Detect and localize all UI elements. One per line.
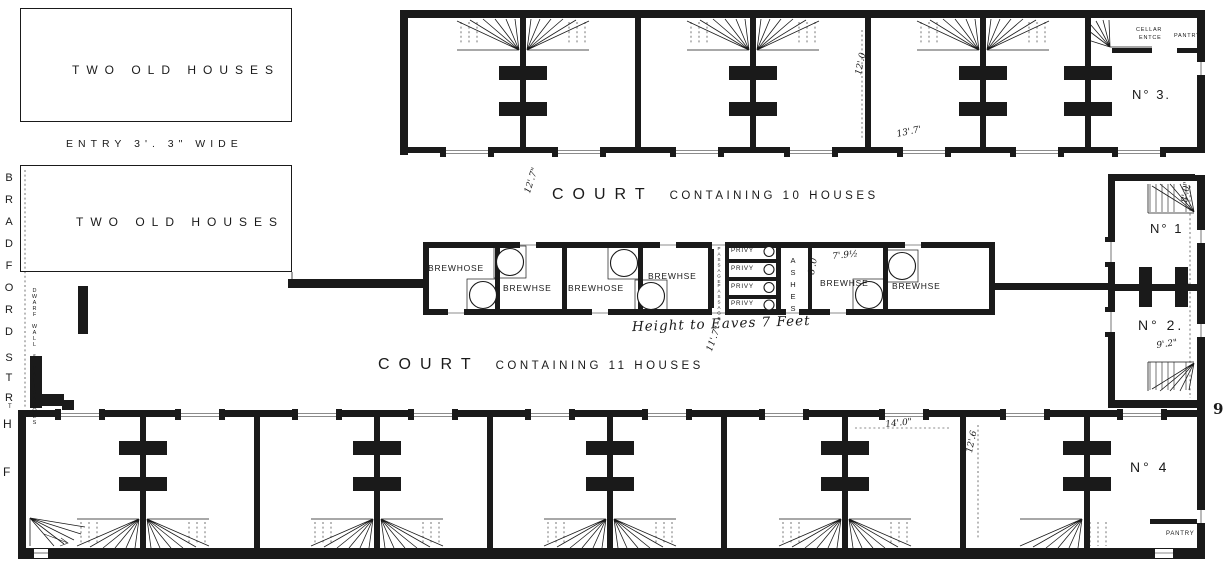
privy-label: PRIVY — [731, 266, 754, 272]
privy-label: PRIVY — [731, 301, 754, 307]
brewhouse-label: BREWHOSE — [428, 264, 484, 273]
brewhouse-label: BREWHSE — [503, 284, 552, 293]
court-boundary-walls — [30, 279, 1108, 412]
privy-label: PRIVY — [731, 284, 754, 290]
pantry-top-label: PANTRY — [1174, 34, 1201, 40]
cellar-entrance-label-line2: ENTCE — [1139, 36, 1162, 42]
brewhouse-label: BREWHOSE — [568, 284, 624, 293]
room-no3-label: N° 3. — [1132, 88, 1171, 101]
cellar-entrance-label-line1: CELLAR — [1136, 28, 1162, 34]
stair-fan — [457, 19, 1152, 50]
street-letter-f: F — [3, 466, 10, 478]
brewhouse-label: BREWHSE — [820, 279, 869, 288]
passage-label: PASSAGE — [716, 283, 721, 322]
brewhouse-label: BREWHSE — [892, 282, 941, 291]
street-letter-h: H — [3, 418, 12, 430]
lower-court-title: COURTCONTAINING 11 HOUSES — [378, 357, 704, 373]
street-name-t: T — [8, 404, 12, 410]
top-terrace — [400, 10, 1205, 157]
brewhouse-label: BREWHSE — [648, 272, 697, 281]
upper-court-title: COURTCONTAINING 10 HOUSES — [552, 187, 879, 203]
room-no2-label: N° 2. — [1138, 318, 1184, 332]
upper-court-rest: CONTAINING 10 HOUSES — [670, 190, 879, 202]
stair-fan — [30, 518, 1106, 548]
lower-court-rest: CONTAINING 11 HOUSES — [496, 360, 704, 372]
street-name-str: STR — [3, 352, 14, 412]
entry-label: ENTRY 3'. 3" WIDE — [66, 139, 243, 150]
privy-label: PRIVY — [731, 248, 754, 254]
upper-court-word: COURT — [552, 186, 654, 203]
passage-label: PASSAGE — [716, 246, 721, 285]
plate-mark: 9 — [1213, 402, 1223, 417]
ashes-label: ASHES — [789, 256, 797, 316]
two-old-houses-lower-label: TWO OLD HOUSES — [76, 216, 284, 228]
two-old-houses-upper-label: TWO OLD HOUSES — [72, 64, 280, 76]
fireplace — [499, 66, 1112, 116]
lower-court-word: COURT — [378, 356, 480, 373]
site-plan: BRADFORD STR T H F TWO OLD HOUSES ENTRY … — [0, 0, 1232, 568]
bottom-terrace — [18, 409, 1205, 559]
street-name-bradford: BRADFORD — [3, 172, 14, 348]
dwarf-wall-label: DWARF WALL & PALISADOES — [31, 288, 37, 426]
middle-range — [423, 241, 995, 316]
room-no4-label: N° 4 — [1130, 460, 1169, 474]
room-no1-label: N° 1 — [1150, 222, 1183, 235]
pantry-bottom-label: PANTRY — [1166, 531, 1195, 537]
